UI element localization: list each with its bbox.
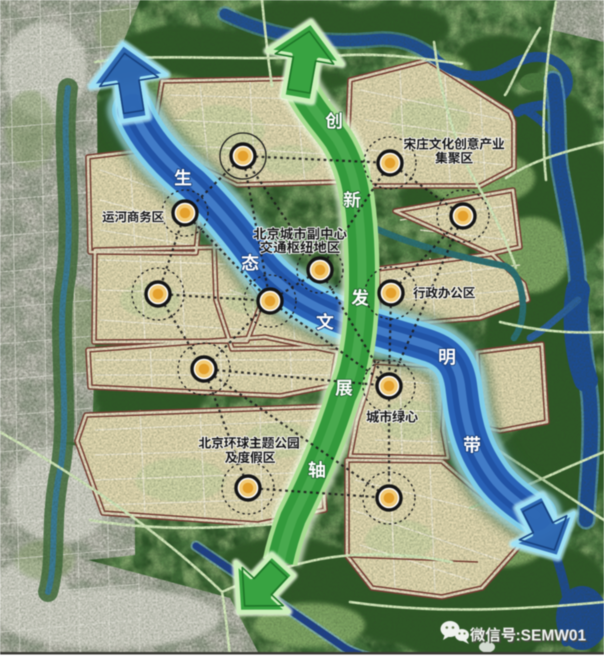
svg-text::SEMW01: :SEMW01: [516, 628, 587, 645]
